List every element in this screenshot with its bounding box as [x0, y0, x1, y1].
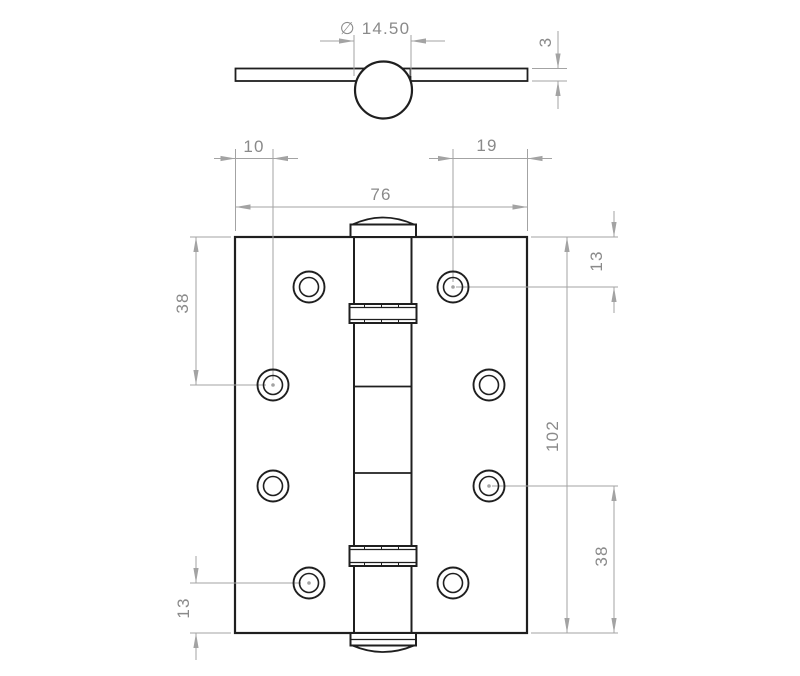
dim-overall-width: 76 — [370, 185, 391, 205]
dim-top-edge-to-second-hole-left: 38 — [173, 292, 193, 313]
bearing-band-lower — [350, 546, 417, 566]
dim-hole-offset-right: 19 — [476, 136, 497, 156]
pin-cap-bottom — [351, 633, 417, 652]
dim-third-hole-to-bottom-edge-right: 38 — [592, 545, 612, 566]
pin-cap-top — [351, 218, 417, 238]
dim-bottom-hole-to-edge-left: 13 — [174, 597, 194, 618]
top-view — [236, 62, 528, 119]
dim-leaf-thickness: 3 — [536, 37, 556, 48]
dim-top-edge-to-first-hole-right: 13 — [587, 250, 607, 271]
hinge-drawing-canvas — [0, 0, 800, 676]
bearing-band-upper — [350, 304, 417, 323]
dim-overall-height: 102 — [543, 420, 563, 452]
dim-knuckle-diameter: ∅ 14.50 — [340, 19, 410, 39]
dim-hole-offset-left: 10 — [243, 137, 264, 157]
hinge-plate-outline — [235, 237, 527, 633]
top-view-knuckle-circle — [355, 62, 412, 119]
drawing-sheet: ∅ 14.50 3 10 19 76 38 13 13 102 38 — [0, 0, 800, 676]
